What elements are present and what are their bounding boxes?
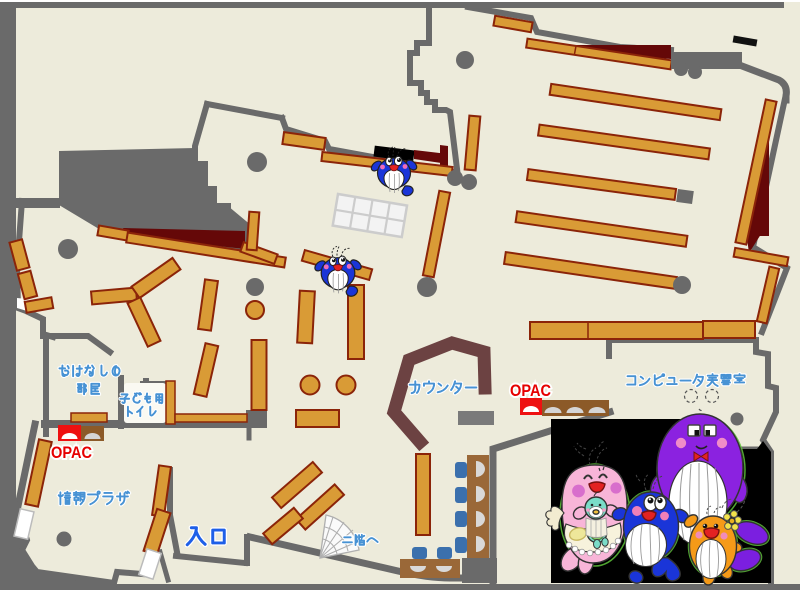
svg-text:OPAC: OPAC — [510, 381, 551, 400]
svg-text:OPAC: OPAC — [51, 443, 92, 462]
